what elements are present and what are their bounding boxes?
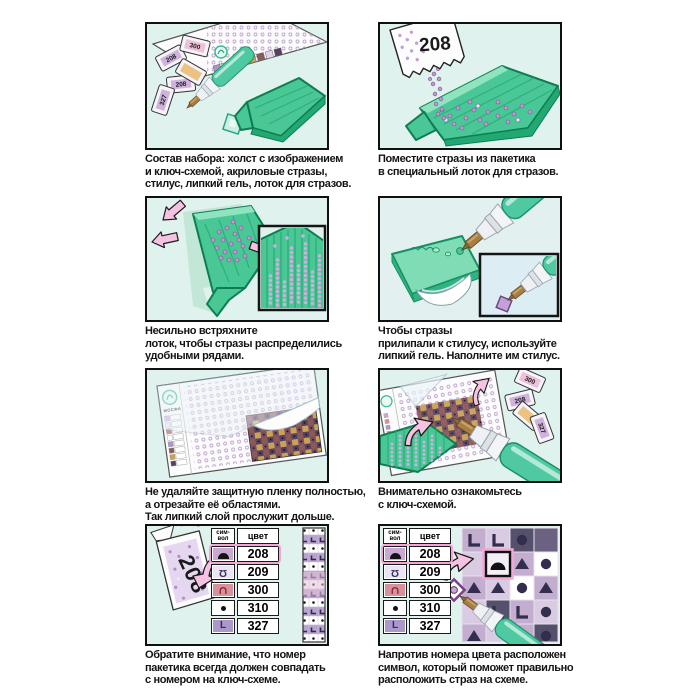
- symbol-inverted-omega-icon: [385, 566, 405, 578]
- highlight-cell: [484, 550, 513, 579]
- panel-pour-into-tray: 208: [378, 22, 562, 150]
- symbol-dot-icon: [213, 602, 233, 614]
- symbol-arch-icon: [213, 584, 233, 596]
- key-table-row-310: 310: [211, 600, 279, 616]
- key-table-row-310: 310: [383, 600, 451, 616]
- caption-pour-into-tray: Поместите стразы из пакетика в специальн…: [378, 153, 588, 178]
- packet-number: 208: [418, 33, 451, 56]
- color-number: 310: [409, 600, 451, 616]
- key-table-row-300: 300: [383, 582, 451, 598]
- symbol-inverted-omega-icon: [213, 566, 233, 578]
- bead-packet: 208: [390, 24, 466, 79]
- symbol-arch-icon: [385, 584, 405, 596]
- panel-symbol-placement: сим- вол цвет 208 209 300 310: [378, 524, 562, 646]
- caption-kit-contents: Состав набора: холст с изображением и кл…: [145, 153, 355, 191]
- bead-packets: 300 208 327: [504, 370, 554, 444]
- panel-shake-tray: [145, 196, 329, 322]
- color-number: 300: [409, 582, 451, 598]
- key-table: сим- вол цвет 208 209 300 310: [211, 528, 279, 634]
- symbol-letter-l-icon: [385, 620, 405, 632]
- canvas-sheet: МОСФА: [157, 370, 326, 477]
- gel-illustration: [380, 198, 560, 320]
- spilled-beads: [171, 526, 206, 531]
- symbol-dome-icon: [385, 548, 405, 560]
- symbol-letter-l-icon: [213, 620, 233, 632]
- pour-illustration: 208: [380, 24, 560, 148]
- caption-study-key: Внимательно ознакомьтесь с ключ-схемой.: [378, 486, 588, 511]
- inset-detail: [255, 222, 327, 314]
- key-table-row-300: 300: [211, 582, 279, 598]
- shake-illustration: [147, 198, 327, 320]
- svg-text:208: 208: [175, 81, 187, 89]
- panel-match-number: 208 сим- вол цвет 20: [145, 524, 329, 646]
- color-number: 310: [237, 600, 279, 616]
- inset-detail: [480, 223, 560, 316]
- caption-symbol-placement: Напротив номера цвета расположен символ,…: [378, 649, 588, 687]
- kit-contents-illustration: 208 300 208 327: [147, 24, 327, 148]
- color-number: 300: [237, 582, 279, 598]
- key-table-row-327: 327: [383, 618, 451, 634]
- panel-sticky-gel: [378, 196, 562, 322]
- symbol-dot-icon: [385, 602, 405, 614]
- panel-kit-contents: 208 300 208 327: [145, 22, 329, 150]
- color-number: 327: [409, 618, 451, 634]
- key-table-row-327: 327: [211, 618, 279, 634]
- color-number: 208: [237, 546, 279, 562]
- color-number: 208: [409, 546, 451, 562]
- panel-protective-film: МОСФА: [145, 368, 329, 483]
- symbol-dome-icon: [213, 548, 233, 560]
- rhinestone-tray: [235, 78, 325, 142]
- pattern-strip: [303, 528, 325, 642]
- caption-sticky-gel: Чтобы стразы прилипали к стилусу, исполь…: [378, 325, 588, 363]
- key-table-row-209: 209: [383, 564, 451, 580]
- key-table-header: сим- вол цвет: [383, 528, 451, 544]
- key-table-row-208: 208: [383, 546, 451, 562]
- instruction-sheet: 208 300 208 327: [0, 0, 700, 700]
- color-number: 209: [237, 564, 279, 580]
- key-table-row-209: 209: [211, 564, 279, 580]
- color-number: 209: [409, 564, 451, 580]
- caption-match-number: Обратите внимание, что номер пакетика вс…: [145, 649, 355, 687]
- key-table-row-208: 208: [211, 546, 279, 562]
- panel-study-key: 300 208 327: [378, 368, 562, 483]
- color-number: 327: [237, 618, 279, 634]
- caption-protective-film: Не удаляйте защитную пленку полностью, а…: [145, 486, 355, 524]
- caption-shake-tray: Несильно встряхните лоток, чтобы стразы …: [145, 325, 355, 363]
- study-key-illustration: 300 208 327: [380, 370, 560, 481]
- key-table-header: сим- вол цвет: [211, 528, 279, 544]
- film-illustration: МОСФА: [147, 370, 327, 481]
- key-table: сим- вол цвет 208 209 300 310: [383, 528, 451, 634]
- brand-logo: [215, 46, 227, 58]
